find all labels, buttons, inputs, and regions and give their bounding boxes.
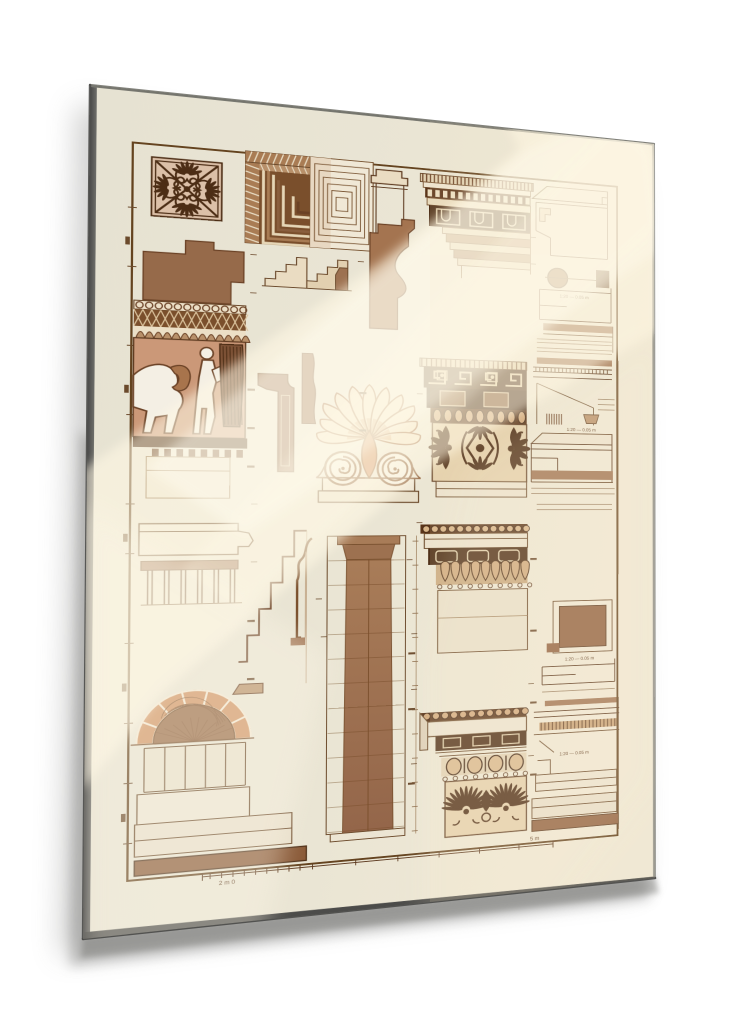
svg-text:5 m: 5 m bbox=[530, 836, 540, 843]
svg-text:1:20 — 0.05 m: 1:20 — 0.05 m bbox=[567, 428, 597, 433]
